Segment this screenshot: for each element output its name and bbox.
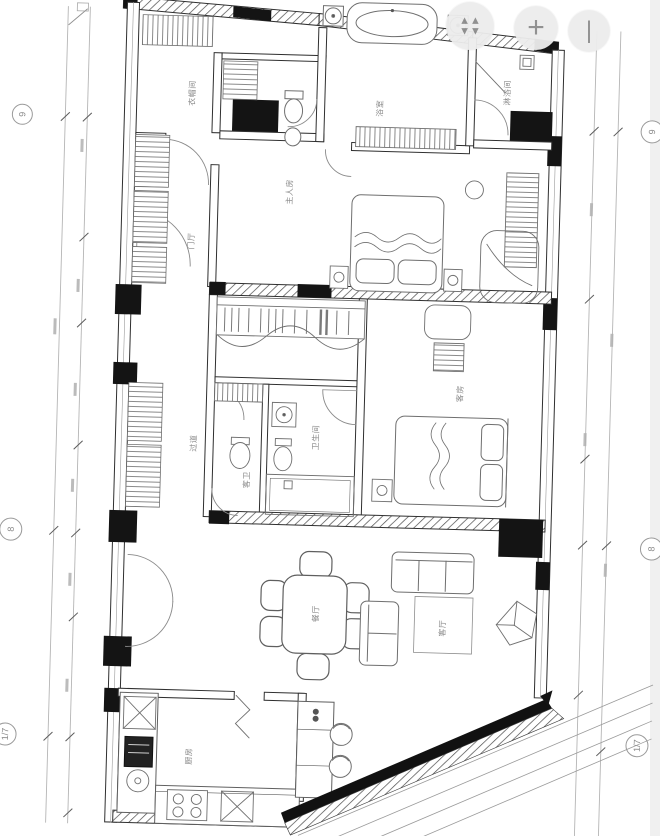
label-foyer: 门厅	[186, 232, 196, 249]
wardrobe-run	[216, 297, 365, 350]
zoom-out-button[interactable]: |	[568, 10, 610, 52]
guest-bathroom-fixtures	[213, 383, 263, 469]
bathroom-fixtures	[265, 402, 356, 516]
grid-label-right-8: 8	[646, 546, 656, 551]
floor-plan-drawing: 9 8 1/7 9 8 1/7	[0, 0, 660, 836]
kitchen-oven	[124, 736, 153, 767]
pan-icon	[457, 13, 483, 39]
nightstand-guest	[372, 479, 393, 502]
grid-label-left-17: 1/7	[0, 728, 10, 741]
label-bath: 浴室	[374, 100, 384, 117]
sofa-three-seat	[391, 552, 474, 594]
interior-walls	[115, 22, 558, 807]
vanity-counter	[356, 127, 457, 150]
zoom-in-button[interactable]: +	[514, 6, 558, 50]
label-guest-room: 客房	[454, 385, 464, 402]
grid-label-left-8: 8	[6, 526, 16, 531]
guest-armchair	[423, 305, 471, 372]
label-kitchen: 厨房	[183, 748, 193, 765]
label-cloakroom: 衣帽间	[187, 80, 198, 106]
decor-plant	[496, 601, 537, 646]
sofa-two-seat	[359, 601, 399, 666]
master-bed	[350, 195, 445, 294]
label-guest-bath: 客卫	[241, 471, 251, 488]
grid-label-right-9: 9	[647, 129, 657, 134]
floorplan-viewer: 9 8 1/7 9 8 1/7	[0, 0, 660, 836]
master-side-furniture	[462, 172, 541, 304]
label-corridor: 过道	[188, 435, 198, 452]
grid-label-left-9: 9	[17, 112, 27, 117]
label-dining-room: 餐厅	[311, 605, 320, 622]
grid-label-right-17: 1/7	[632, 739, 642, 752]
label-shower-room: 淋浴间	[502, 80, 513, 106]
plus-icon: +	[527, 11, 545, 45]
label-bathroom: 卫生间	[310, 425, 321, 451]
bathtub	[346, 2, 437, 44]
grid-bubble-labels: 9 8 1/7 9 8 1/7	[0, 112, 660, 759]
label-master-bedroom: 主人房	[284, 179, 295, 205]
bar-icon: |	[586, 17, 592, 45]
pan-button[interactable]	[446, 2, 494, 50]
kitchen-round-fixture	[126, 769, 149, 792]
toilet-and-bidet	[284, 91, 304, 146]
guest-bed	[394, 416, 508, 507]
label-living-room: 客厅	[437, 620, 447, 637]
grid-bubbles	[0, 103, 660, 763]
kitchen-stove	[167, 790, 208, 821]
